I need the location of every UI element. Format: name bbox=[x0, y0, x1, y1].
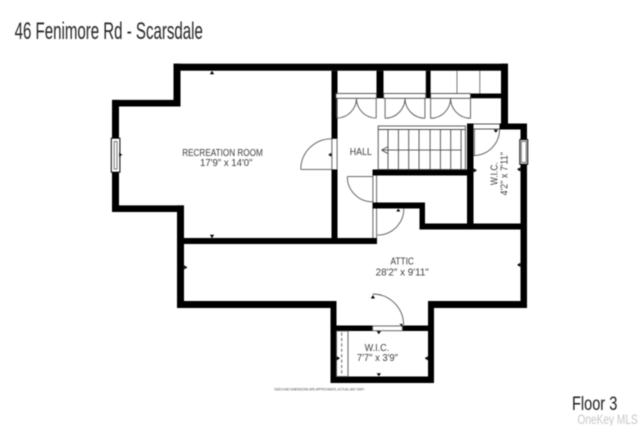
svg-text:46 Fenimore Rd - Scarsdale: 46 Fenimore Rd - Scarsdale bbox=[15, 18, 203, 45]
svg-text:17'9" x 14'0": 17'9" x 14'0" bbox=[200, 158, 253, 169]
svg-text:7'7" x 3'9": 7'7" x 3'9" bbox=[357, 353, 398, 364]
svg-text:28'2" x 9'11": 28'2" x 9'11" bbox=[376, 268, 429, 279]
svg-text:4'2" x 7'11": 4'2" x 7'11" bbox=[500, 152, 511, 196]
svg-text:OneKey MLS: OneKey MLS bbox=[578, 412, 638, 426]
svg-text:SIZES AND DIMENSIONS ARE APPRO: SIZES AND DIMENSIONS ARE APPROXIMATE, AC… bbox=[274, 387, 364, 392]
svg-text:ATTIC: ATTIC bbox=[391, 257, 415, 268]
svg-text:HALL: HALL bbox=[350, 147, 372, 158]
